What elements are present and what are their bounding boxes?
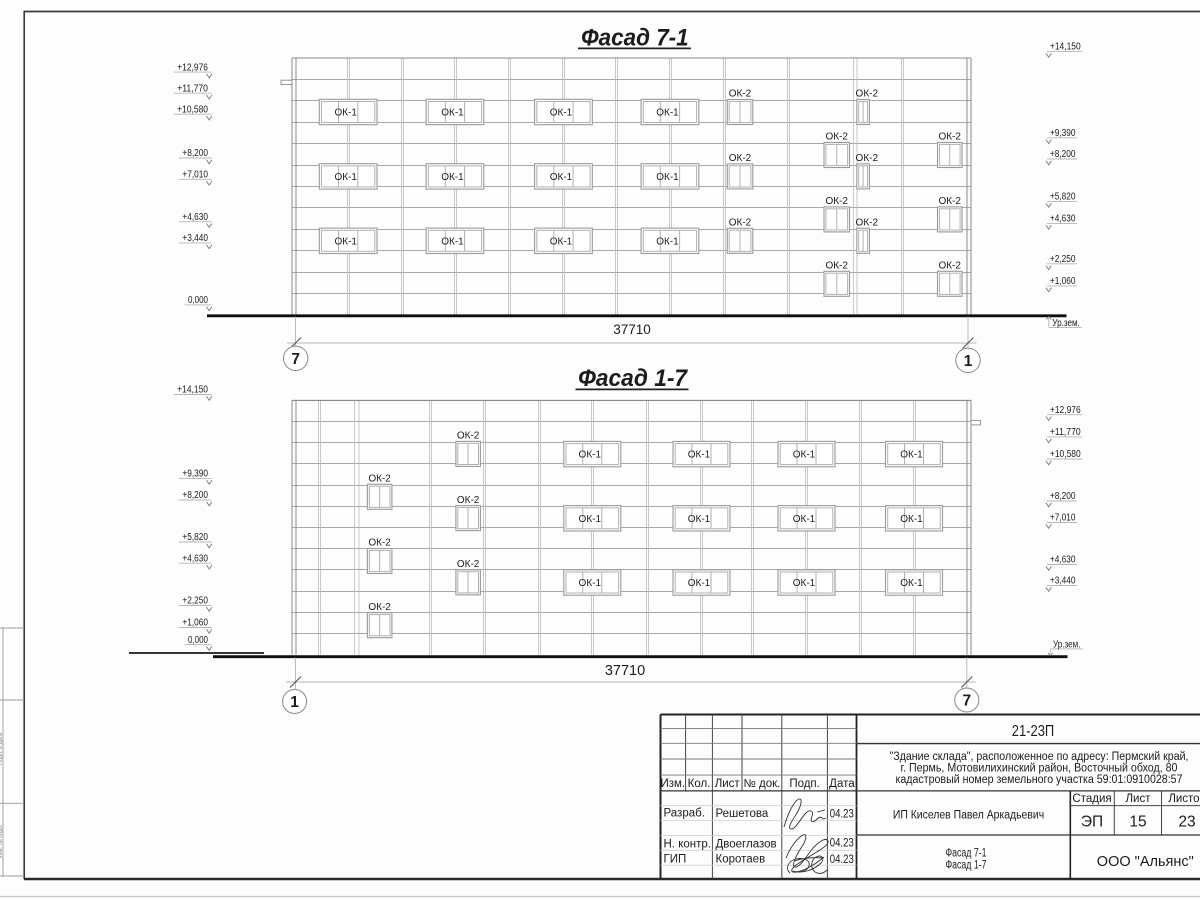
- svg-text:ОК-1: ОК-1: [579, 514, 602, 525]
- svg-text:ОК-2: ОК-2: [457, 559, 480, 570]
- svg-text:Фасад 7-1: Фасад 7-1: [581, 24, 689, 51]
- svg-text:Подп.: Подп.: [789, 778, 820, 790]
- svg-text:ОК-1: ОК-1: [900, 450, 923, 461]
- svg-text:37710: 37710: [613, 322, 651, 337]
- svg-text:Фасад 7-1: Фасад 7-1: [946, 847, 987, 859]
- svg-text:Лист: Лист: [715, 778, 741, 790]
- svg-text:ОК-2: ОК-2: [368, 538, 391, 549]
- svg-text:ОК-2: ОК-2: [825, 132, 848, 143]
- svg-text:+14,150: +14,150: [1050, 42, 1081, 53]
- svg-text:7: 7: [291, 351, 300, 368]
- svg-text:Дата: Дата: [829, 778, 855, 790]
- svg-text:Ур.зем.: Ур.зем.: [1052, 318, 1080, 329]
- svg-text:7: 7: [962, 693, 971, 710]
- svg-text:ОК-2: ОК-2: [856, 153, 879, 164]
- svg-text:ОК-1: ОК-1: [579, 450, 602, 461]
- svg-text:ОК-1: ОК-1: [793, 514, 816, 525]
- svg-text:ОК-2: ОК-2: [825, 196, 848, 207]
- svg-text:ОК-2: ОК-2: [457, 431, 480, 442]
- svg-text:15: 15: [1129, 813, 1146, 830]
- svg-text:ОК-1: ОК-1: [550, 172, 573, 183]
- svg-text:ГИП: ГИП: [664, 854, 687, 866]
- svg-text:1: 1: [290, 694, 299, 711]
- svg-text:Разраб.: Разраб.: [664, 808, 705, 820]
- svg-text:Лист: Лист: [1126, 793, 1152, 805]
- svg-text:Стадия: Стадия: [1072, 793, 1111, 805]
- svg-text:04.23: 04.23: [830, 808, 854, 820]
- svg-text:Н. контр.: Н. контр.: [664, 839, 711, 851]
- svg-text:Ур.зем.: Ур.зем.: [1053, 640, 1081, 651]
- svg-text:ОК-1: ОК-1: [793, 450, 816, 461]
- svg-text:ОК-1: ОК-1: [441, 236, 464, 247]
- svg-text:Двоеглазов: Двоеглазов: [716, 839, 777, 851]
- svg-text:ОК-2: ОК-2: [938, 132, 961, 143]
- svg-text:ОК-1: ОК-1: [334, 236, 357, 247]
- svg-text:ОК-2: ОК-2: [729, 218, 752, 229]
- svg-text:ОК-1: ОК-1: [441, 108, 464, 119]
- svg-text:23: 23: [1178, 813, 1195, 830]
- svg-text:ОК-1: ОК-1: [550, 236, 573, 247]
- svg-text:Подп. и дата: Подп. и дата: [0, 732, 4, 765]
- svg-text:ОК-1: ОК-1: [441, 172, 464, 183]
- svg-text:ИП Киселев Павел Аркадьевич: ИП Киселев Павел Аркадьевич: [893, 810, 1044, 822]
- svg-text:ОК-1: ОК-1: [334, 108, 357, 119]
- svg-text:37710: 37710: [605, 663, 645, 679]
- svg-text:ЭП: ЭП: [1081, 813, 1103, 830]
- svg-text:ОК-2: ОК-2: [729, 89, 752, 100]
- svg-text:Коротаев: Коротаев: [716, 854, 766, 866]
- svg-text:ОК-1: ОК-1: [579, 578, 602, 589]
- svg-text:ОК-2: ОК-2: [938, 261, 961, 272]
- svg-text:ООО "Альянс": ООО "Альянс": [1097, 854, 1194, 870]
- svg-text:Изм.: Изм.: [660, 778, 685, 790]
- svg-text:"Здание склада", расположенное: "Здание склада", расположенное по адресу…: [890, 751, 1189, 763]
- svg-text:№ док.: № док.: [743, 778, 780, 790]
- svg-text:Решетова: Решетова: [716, 808, 769, 820]
- svg-text:ОК-2: ОК-2: [368, 602, 391, 613]
- svg-text:ОК-2: ОК-2: [457, 495, 480, 506]
- svg-text:ОК-1: ОК-1: [793, 578, 816, 589]
- svg-text:ОК-1: ОК-1: [550, 108, 573, 119]
- svg-text:ОК-1: ОК-1: [656, 172, 679, 183]
- svg-text:04.23: 04.23: [830, 838, 854, 850]
- svg-text:Листов: Листов: [1168, 793, 1200, 805]
- svg-text:г. Пермь, Мотовилихинский райо: г. Пермь, Мотовилихинский район, Восточн…: [901, 763, 1178, 775]
- svg-text:Кол.: Кол.: [688, 778, 711, 790]
- svg-text:ОК-2: ОК-2: [938, 196, 961, 207]
- svg-text:Фасад 1-7: Фасад 1-7: [578, 365, 689, 392]
- svg-text:ОК-2: ОК-2: [729, 153, 752, 164]
- svg-text:ОК-2: ОК-2: [368, 474, 391, 485]
- svg-text:ОК-2: ОК-2: [825, 261, 848, 272]
- svg-text:ОК-1: ОК-1: [688, 578, 711, 589]
- svg-text:ОК-1: ОК-1: [334, 172, 357, 183]
- svg-text:кадастровый номер земельного у: кадастровый номер земельного участка 59:…: [896, 774, 1183, 786]
- svg-text:04.23: 04.23: [830, 854, 854, 866]
- svg-text:Фасад 1-7: Фасад 1-7: [946, 859, 987, 871]
- svg-text:ОК-1: ОК-1: [688, 514, 711, 525]
- svg-text:Инв. № подл.: Инв. № подл.: [0, 823, 4, 858]
- svg-text:ОК-2: ОК-2: [856, 89, 879, 100]
- svg-text:ОК-1: ОК-1: [656, 108, 679, 119]
- svg-text:ОК-2: ОК-2: [856, 218, 879, 229]
- svg-text:ОК-1: ОК-1: [688, 450, 711, 461]
- svg-text:ОК-1: ОК-1: [656, 236, 679, 247]
- svg-text:1: 1: [964, 353, 973, 370]
- svg-text:21-23П: 21-23П: [1012, 723, 1055, 740]
- svg-text:ОК-1: ОК-1: [900, 578, 923, 589]
- svg-text:ОК-1: ОК-1: [900, 514, 923, 525]
